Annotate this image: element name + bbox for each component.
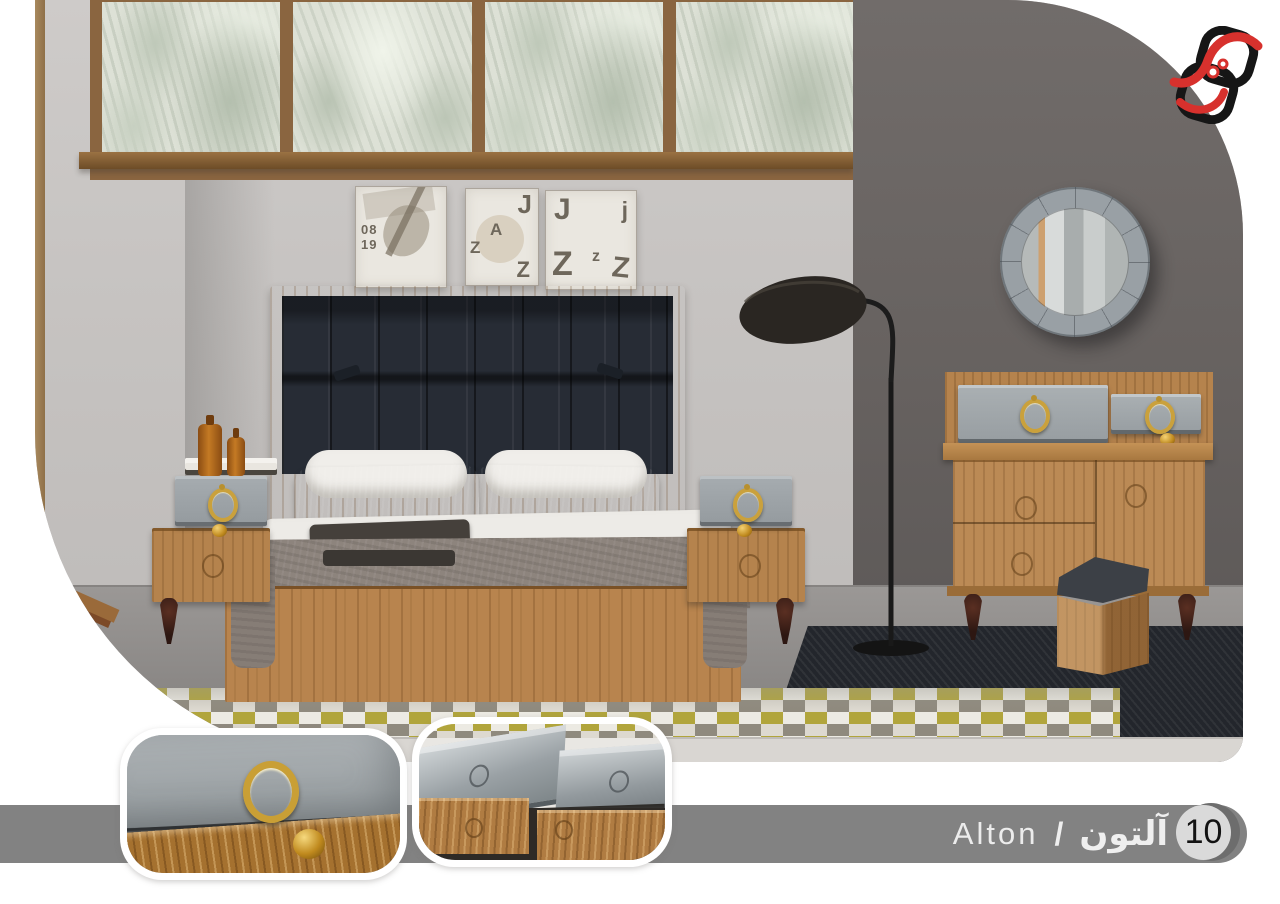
brand-logo-icon [1166, 26, 1268, 124]
gold-ball-foot-closeup [293, 829, 325, 859]
dresser-top-board [943, 443, 1213, 460]
lamp-shade [735, 268, 871, 351]
poster-letter: j [622, 199, 628, 222]
poster-letter: A [490, 221, 502, 238]
wall-corner-trim [35, 0, 45, 575]
dresser-gray-drawer-right [1111, 394, 1201, 434]
bed-base [225, 586, 741, 702]
bedroom-photo: 08 19 J A Z Z J j Z z Z [35, 0, 1243, 762]
window-pane [485, 2, 663, 168]
product-name-arabic: آلتون [1079, 814, 1168, 854]
drawer-motif [608, 770, 630, 794]
nightstand-top-drawer [700, 476, 792, 526]
dresser-gray-drawer-left [958, 385, 1108, 443]
wood-drawer-front [537, 810, 665, 860]
drawer-motif [555, 820, 573, 840]
round-wall-mirror [1000, 187, 1150, 337]
window-sill [79, 152, 853, 169]
ring-handle [1145, 400, 1175, 434]
wall-poster-jazz-1: J A Z Z [465, 188, 539, 286]
poster-letter: z [592, 249, 600, 265]
wall-poster-jazz-2: J j Z z Z [545, 190, 637, 290]
engraved-ring-motif [1015, 496, 1037, 520]
gold-ball-foot [212, 524, 227, 537]
product-name-latin: Alton [953, 816, 1039, 852]
drawer-motif [465, 818, 483, 838]
detail-photo-frame [419, 724, 665, 860]
logo-red-swirl-2 [1180, 92, 1224, 110]
window-pane [676, 2, 854, 168]
poster-date-text: 08 19 [361, 223, 377, 253]
poster-letter: J [554, 195, 571, 225]
throw-blanket-fold [323, 550, 455, 566]
item-number-badge: 10 [1176, 805, 1231, 860]
hexagon-stool [1053, 557, 1153, 675]
gold-ball-foot [737, 524, 752, 537]
amber-bottle [227, 437, 245, 476]
lamp-pole [889, 378, 894, 646]
window-pane [102, 2, 280, 168]
logo-dot [1208, 67, 1218, 77]
headboard-strap [596, 362, 624, 380]
wall-poster-guitar: 08 19 [355, 186, 447, 288]
drawer-motif [469, 763, 490, 789]
detail-photo-handle [120, 728, 407, 880]
engraved-ring-motif [202, 554, 224, 578]
label-separator: / [1054, 816, 1063, 853]
nightstand-cabinet [687, 528, 805, 602]
detail-photo-drawers [412, 717, 672, 867]
headboard-strap [333, 364, 361, 382]
amber-bottle [198, 424, 222, 476]
poster-letter: Z [470, 239, 480, 256]
engraved-ring-motif [1011, 552, 1033, 576]
nightstand-top-drawer [175, 476, 267, 526]
engraved-ring-motif [739, 554, 761, 578]
stool-body [1057, 591, 1149, 675]
floor-lamp [725, 262, 955, 662]
poster-letter: J [518, 191, 532, 217]
nightstand-cabinet [152, 528, 270, 602]
ring-handle [733, 488, 763, 522]
dresser-drawer-seam [953, 522, 1095, 524]
detail-photo-frame [127, 735, 400, 873]
engraved-ring-motif [1125, 484, 1147, 508]
mirror-glass [1021, 208, 1129, 316]
poster-letter: Z [611, 253, 632, 284]
logo-dot [1219, 60, 1227, 68]
catalog-page: 08 19 J A Z Z J j Z z Z [0, 0, 1280, 904]
ring-handle [208, 488, 238, 522]
window-pane [293, 2, 471, 168]
ring-handle-closeup [243, 761, 299, 823]
ring-handle [1020, 399, 1050, 433]
wood-drawer-front [419, 798, 529, 854]
poster-letter: Z [552, 247, 573, 281]
poster-letter: Z [517, 259, 530, 281]
headboard-upholstery [282, 296, 673, 474]
